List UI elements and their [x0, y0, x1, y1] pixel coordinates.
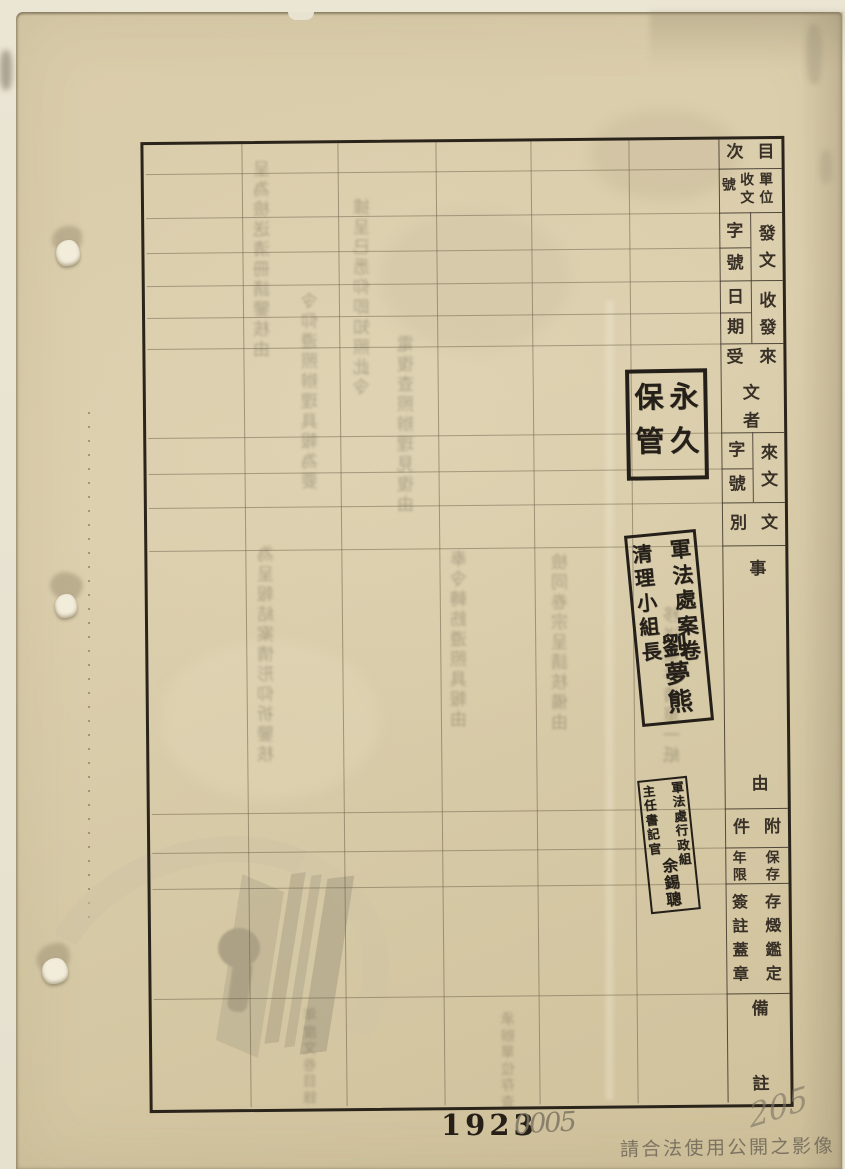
header-item-number-sub: 次: [726, 143, 743, 162]
header-dispatch-no-sub-bottom: 號: [726, 254, 743, 273]
header-date-sub-bottom: 期: [727, 318, 744, 337]
header-correspondent-bottom: 者: [743, 412, 760, 431]
header-incoming-no-sub-top: 字: [728, 441, 745, 460]
header-incoming-no-main: 來文: [760, 440, 778, 495]
header-unit-receipt-col3: 號: [722, 174, 736, 194]
header-subject-top: 事: [749, 560, 766, 579]
header-correspondent-mid: 文: [743, 384, 760, 403]
header-incoming-no-sub-bottom: 號: [729, 475, 746, 494]
stamp-text-left: 清理小組長: [631, 541, 664, 664]
margin-smudge: [806, 24, 822, 84]
header-retention-left: 年限: [732, 850, 747, 884]
header-doc-type-main: 文: [761, 514, 778, 533]
header-unit-receipt-col1: 單位: [759, 172, 774, 207]
stamp-text-left: 保管: [633, 376, 665, 464]
header-attachments-sub: 件: [733, 818, 750, 837]
header-doc-type-sub: 別: [730, 514, 747, 533]
stamp-text-left: 主任書記官: [642, 784, 663, 857]
margin-smudge: [820, 150, 832, 184]
header-dispatch-no-main: 發文: [758, 221, 776, 276]
header-correspondent-receiving: 受: [726, 348, 743, 367]
handwritten-page-number: 0005: [513, 1106, 575, 1140]
header-item-number-main: 目: [757, 143, 774, 162]
header-correspondent-incoming: 來: [759, 348, 776, 367]
header-appraisal-right: 存燬鑑定: [765, 890, 783, 986]
header-remarks-top: 備: [752, 1000, 769, 1019]
scanned-document-canvas: { "colors": { "paper": "#d9ccaa", "scan_…: [0, 0, 845, 1169]
stamp-text-right: 永久: [668, 375, 700, 463]
header-date-sub-top: 日: [727, 288, 744, 307]
header-retention-right: 保存: [765, 850, 780, 884]
header-subject-bottom: 由: [751, 775, 768, 794]
header-date-main: 收發: [759, 288, 777, 343]
stamp-permanent-retention: 永久 保管: [625, 368, 709, 480]
archives-usage-watermark: 請合法使用公開之影像: [620, 1131, 835, 1162]
header-attachments-main: 附: [764, 818, 781, 837]
header-dispatch-no-sub-top: 字: [726, 222, 743, 241]
header-appraisal-left: 簽註蓋章: [732, 890, 750, 986]
registry-ledger-table: 目 次 單位 收文 號 發文 字 號 收發 日 期 來 受 文 者 來文 字 號…: [0, 0, 845, 1169]
header-unit-receipt-col2: 收文: [740, 172, 755, 207]
